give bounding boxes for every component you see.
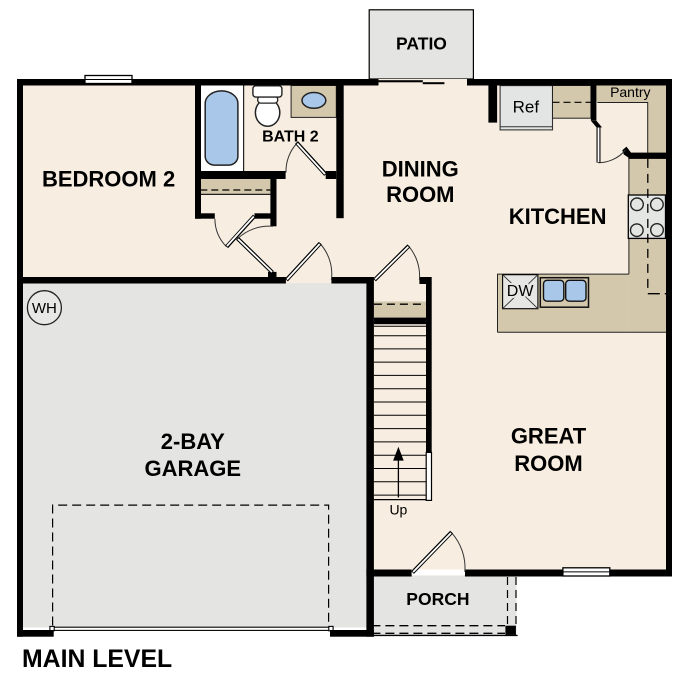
svg-text:KITCHEN: KITCHEN [509,204,607,229]
svg-text:ROOM: ROOM [514,451,582,476]
svg-text:MAIN LEVEL: MAIN LEVEL [22,646,172,673]
svg-text:PORCH: PORCH [406,589,469,609]
svg-text:2-BAY: 2-BAY [161,429,225,454]
svg-text:GARAGE: GARAGE [145,456,242,481]
svg-text:Ref: Ref [513,97,540,116]
svg-text:Up: Up [389,502,407,518]
svg-text:DINING: DINING [382,157,459,182]
svg-text:BATH 2: BATH 2 [262,129,319,146]
svg-text:ROOM: ROOM [386,182,454,207]
svg-text:WH: WH [32,300,57,317]
svg-text:GREAT: GREAT [511,424,587,449]
svg-text:Pantry: Pantry [610,84,650,100]
svg-text:BEDROOM 2: BEDROOM 2 [42,166,175,191]
svg-text:DW: DW [507,283,535,300]
svg-text:PATIO: PATIO [396,34,447,54]
